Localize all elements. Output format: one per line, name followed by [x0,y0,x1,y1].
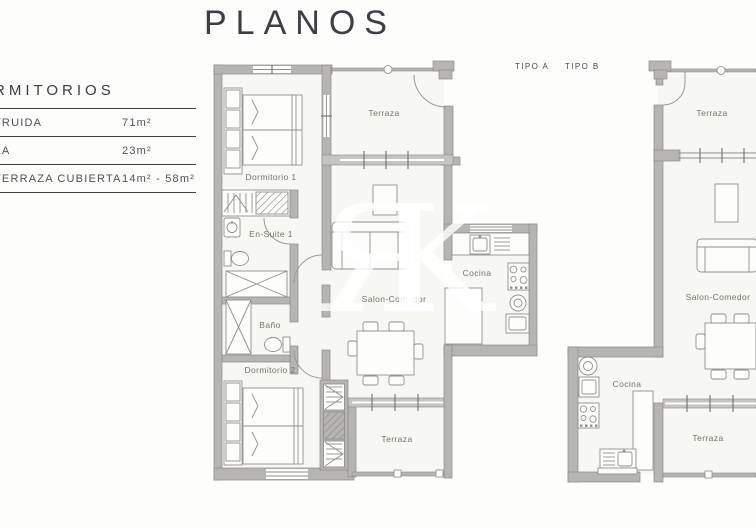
wall [214,65,222,480]
stove-icon [508,263,529,290]
window [470,225,512,232]
kitchen-peninsula-icon [445,288,482,344]
page: PLANOS RMITORIOS TRUIDA 71m² ZA 23m² TER… [0,0,756,528]
kitchen-counter-icon [452,233,529,255]
room-label-dormitorio1: Dormitorio 1 [245,172,296,182]
sink-icon [224,218,240,237]
railing-post [717,67,725,75]
sink-icon [598,449,637,474]
floorplan-tipo-a: Terraza Dormitorio 1 En-Suite 1 Baño Sal… [0,0,537,480]
railing-post [384,66,392,74]
room-label-cocina-a: Cocina [463,268,492,278]
floorplan-tipo-b: Terraza Salon-Comedor Cocina Terraza [568,61,756,482]
room-label-terraza-top-a: Terraza [368,108,399,118]
window [266,469,308,479]
extractor-icon [579,357,597,375]
room-label-bano: Baño [259,320,280,330]
shower-icon [226,300,251,354]
tv-cabinet-icon [373,185,397,215]
toilet-icon [224,251,249,266]
railing-post [394,470,401,477]
room-label-salon-a: Salon-Comedor [362,294,427,304]
room-label-terraza-bottom-b: Terraza [692,433,723,443]
oven-icon [579,377,599,397]
extractor-icon [510,295,526,311]
room-label-ensuite1: En-Suite 1 [249,229,293,239]
wardrobe-icon [320,380,348,470]
window [253,65,291,74]
room-label-terraza-bottom-a: Terraza [381,434,412,444]
room-label-dormitorio2: Dormitorio 2 [244,365,295,375]
oven-icon [506,314,529,333]
dining-table-icon [696,314,756,379]
stove-icon [578,403,599,428]
room-label-terraza-top-b: Terraza [696,108,727,118]
room-label-cocina-b: Cocina [613,379,642,389]
room-label-salon-b: Salon-Comedor [686,292,751,302]
bed-icon [224,381,303,465]
shower-icon [226,271,287,297]
sofa-icon [697,239,756,272]
railing-post [436,470,443,477]
sofa-icon [332,222,408,269]
wardrobe-icon [222,190,290,216]
bed-icon [224,88,302,174]
railing-post [705,471,712,478]
railing [668,69,756,72]
toilet-icon [265,337,291,352]
tv-cabinet-icon [715,184,738,222]
floorplan-canvas: Terraza Dormitorio 1 En-Suite 1 Baño Sal… [0,0,756,528]
